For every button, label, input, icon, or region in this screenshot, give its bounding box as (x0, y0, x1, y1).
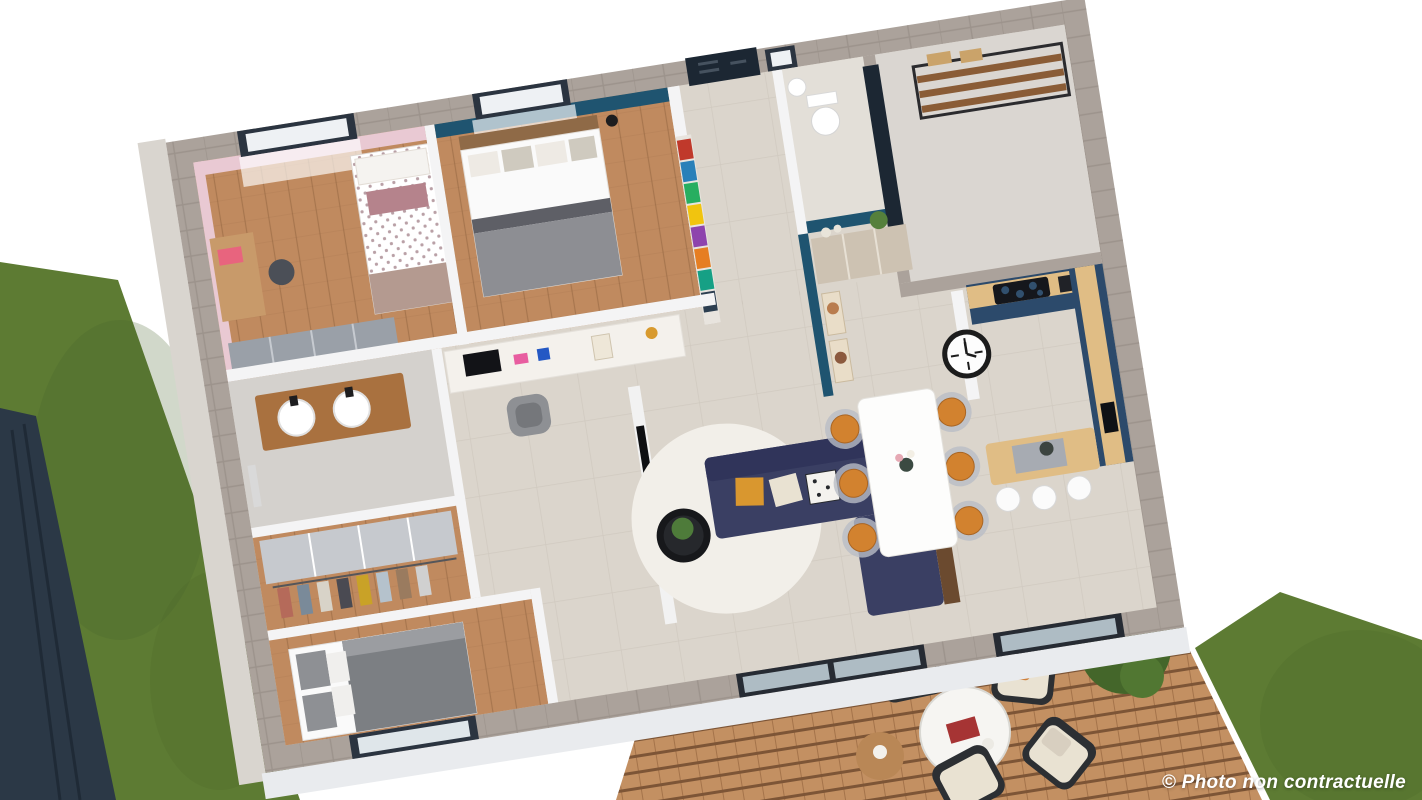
pillow (501, 146, 534, 172)
double-bed (459, 115, 623, 297)
photo-caption: © Photo non contractuelle (1162, 772, 1406, 794)
pillow (468, 151, 501, 177)
desk-decor-blue (537, 347, 551, 361)
dining-area (821, 382, 992, 563)
pillow (302, 691, 337, 731)
faucet (344, 387, 353, 398)
pillow (535, 140, 568, 166)
art-print (591, 334, 613, 361)
pillow (568, 136, 597, 162)
faucet (289, 395, 298, 406)
outdoor-lamp (873, 745, 887, 759)
floor-plan-render: © Photo non contractuelle (0, 0, 1422, 800)
mustard-cushion (735, 477, 763, 505)
pillow (296, 650, 331, 690)
house-3d-render (0, 0, 1422, 800)
